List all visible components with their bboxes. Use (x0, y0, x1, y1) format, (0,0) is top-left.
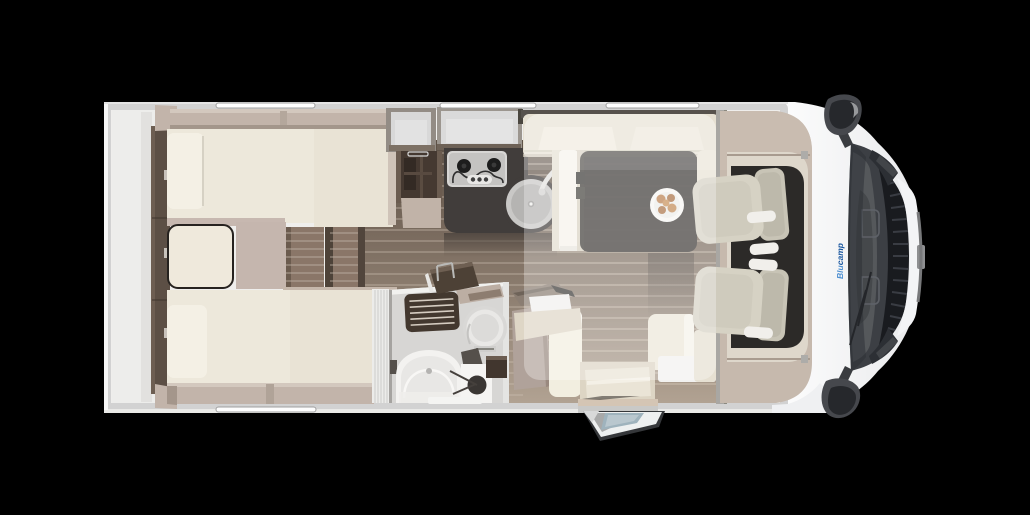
svg-text:Blucamp: Blucamp (835, 243, 845, 279)
